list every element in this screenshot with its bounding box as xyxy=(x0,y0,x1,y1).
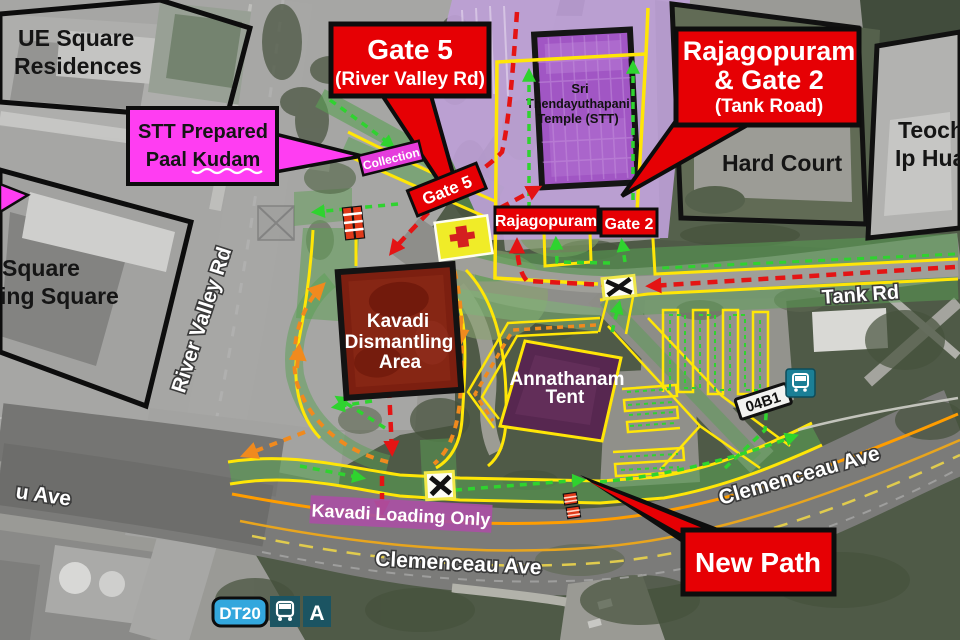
svg-text:Residences: Residences xyxy=(14,53,142,79)
svg-text:Gate 5: Gate 5 xyxy=(367,34,453,65)
svg-text:(Tank Road): (Tank Road) xyxy=(715,96,823,117)
svg-text:(River Valley Rd): (River Valley Rd) xyxy=(335,69,485,90)
svg-text:Thendayuthapani: Thendayuthapani xyxy=(526,97,629,111)
svg-text:Gate 2: Gate 2 xyxy=(605,216,654,233)
svg-text:Teoch: Teoch xyxy=(898,117,960,143)
svg-text:Ip Hua: Ip Hua xyxy=(895,145,960,171)
svg-text:Rajagopuram: Rajagopuram xyxy=(495,213,597,230)
svg-text:ing Square: ing Square xyxy=(0,283,119,309)
svg-text:A: A xyxy=(309,602,324,625)
svg-text:Rajagopuram: Rajagopuram xyxy=(683,36,856,66)
svg-text:STT Prepared: STT Prepared xyxy=(138,121,268,143)
svg-text:Sri: Sri xyxy=(571,81,588,96)
svg-text:Square: Square xyxy=(2,255,80,281)
svg-text:Area: Area xyxy=(379,352,422,373)
svg-text:Tent: Tent xyxy=(546,387,585,408)
svg-text:DT20: DT20 xyxy=(219,604,261,623)
svg-text:& Gate 2: & Gate 2 xyxy=(714,65,824,95)
svg-text:Kavadi: Kavadi xyxy=(367,311,429,332)
svg-text:Hard Court: Hard Court xyxy=(722,150,842,176)
svg-text:Temple (STT): Temple (STT) xyxy=(537,111,618,126)
svg-text:New Path: New Path xyxy=(695,547,821,578)
svg-text:Paal Kudam: Paal Kudam xyxy=(146,149,260,171)
svg-text:Dismantling: Dismantling xyxy=(345,332,454,353)
svg-text:UE Square: UE Square xyxy=(18,25,134,51)
